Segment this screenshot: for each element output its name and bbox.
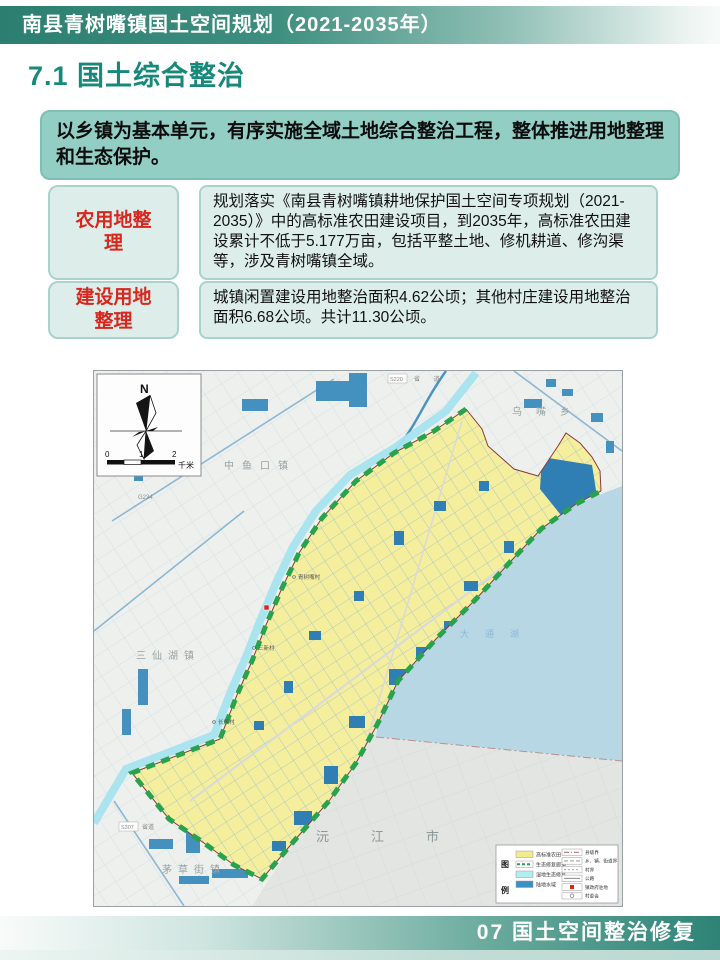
village-label-changkang: 长康村 (218, 718, 235, 726)
road-label-g234: G234 (138, 495, 153, 501)
legend-line-3: 公路 (585, 875, 595, 882)
header-bar: 南县青树嘴镇国土空间规划（2021-2035年） (0, 6, 720, 44)
legend-line-1: 乡、镇、街道界 (585, 858, 618, 865)
scale-tick-2: 2 (172, 450, 177, 459)
road-label-s307-type: 省道 (142, 823, 154, 831)
scale-tick-0: 0 (105, 450, 110, 459)
planning-map-svg: 大通湖 沅江市 (94, 371, 622, 906)
construction-text: 城镇闲置建设用地整治面积4.62公顷；其他村庄建设用地整治面积6.68公顷。共计… (199, 281, 658, 339)
page-title: 南县青树嘴镇国土空间规划（2021-2035年） (0, 6, 720, 44)
road-label-s220-type: 省 道 (414, 375, 446, 383)
north-label: N (140, 382, 149, 396)
legend-line-5: 村委会 (585, 893, 599, 900)
town-gov-marker (264, 605, 269, 610)
construction-label: 建设用地整理 (73, 286, 155, 334)
town-label-sanxianhu: 三仙湖镇 (136, 649, 200, 662)
legend-line-0: 县级界 (585, 849, 599, 856)
footer-title: 07 国土空间整治修复 (477, 916, 720, 950)
construction-label-box: 建设用地整理 (48, 281, 179, 339)
footer-bar: 07 国土空间整治修复 (0, 916, 720, 950)
scale-unit: 千米 (178, 460, 194, 470)
city-label: 沅江市 (316, 829, 481, 844)
farmland-label: 农用地整理 (73, 209, 155, 257)
section-title: 7.1 国土综合整治 (28, 54, 245, 93)
legend-area-2: 湿地生态修复 (536, 872, 566, 879)
legend-line-2: 村界 (585, 866, 595, 873)
town-label-maocaojie: 茅草街镇 (162, 863, 226, 876)
scale-tick-1: 1 (139, 450, 144, 459)
village-label-qingshuzui: 青树嘴村 (298, 573, 321, 581)
intro-box: 以乡镇为基本单元，有序实施全域土地综合整治工程，整体推进用地整理和生态保护。 (40, 110, 680, 180)
footer-strip (0, 950, 720, 960)
legend-title-top: 图 (501, 860, 509, 869)
lake-label: 大通湖 (460, 628, 535, 639)
info-row-farmland: 农用地整理 规划落实《南县青树嘴镇耕地保护国土空间专项规划（2021-2035）… (48, 185, 658, 280)
legend-area-1: 生态修复廊道 (536, 862, 566, 869)
village-label-sanxin: 三新村 (258, 644, 275, 652)
farmland-label-box: 农用地整理 (48, 185, 179, 280)
compass-inset: N 0 1 2 千米 (97, 374, 201, 476)
planning-map: 大通湖 沅江市 (93, 370, 623, 907)
legend-area-0: 高标准农田 (536, 852, 561, 859)
map-legend: 图 例 高标准农田 生态修复廊道 湿地生态修复 陆地水域 (496, 845, 618, 903)
town-label-zhongyukou: 中鱼口镇 (224, 459, 296, 472)
legend-area-3: 陆地水域 (536, 882, 556, 889)
legend-title-bottom: 例 (501, 885, 509, 895)
info-row-construction: 建设用地整理 城镇闲置建设用地整治面积4.62公顷；其他村庄建设用地整治面积6.… (48, 281, 658, 339)
legend-line-4: 镇政府驻地 (585, 884, 608, 891)
road-label-s220: S220 (390, 377, 403, 383)
road-label-s307: S307 (121, 825, 134, 831)
farmland-text: 规划落实《南县青树嘴镇耕地保护国土空间专项规划（2021-2035）》中的高标准… (199, 185, 658, 280)
town-label-wuzui: 乌嘴乡 (512, 405, 584, 418)
